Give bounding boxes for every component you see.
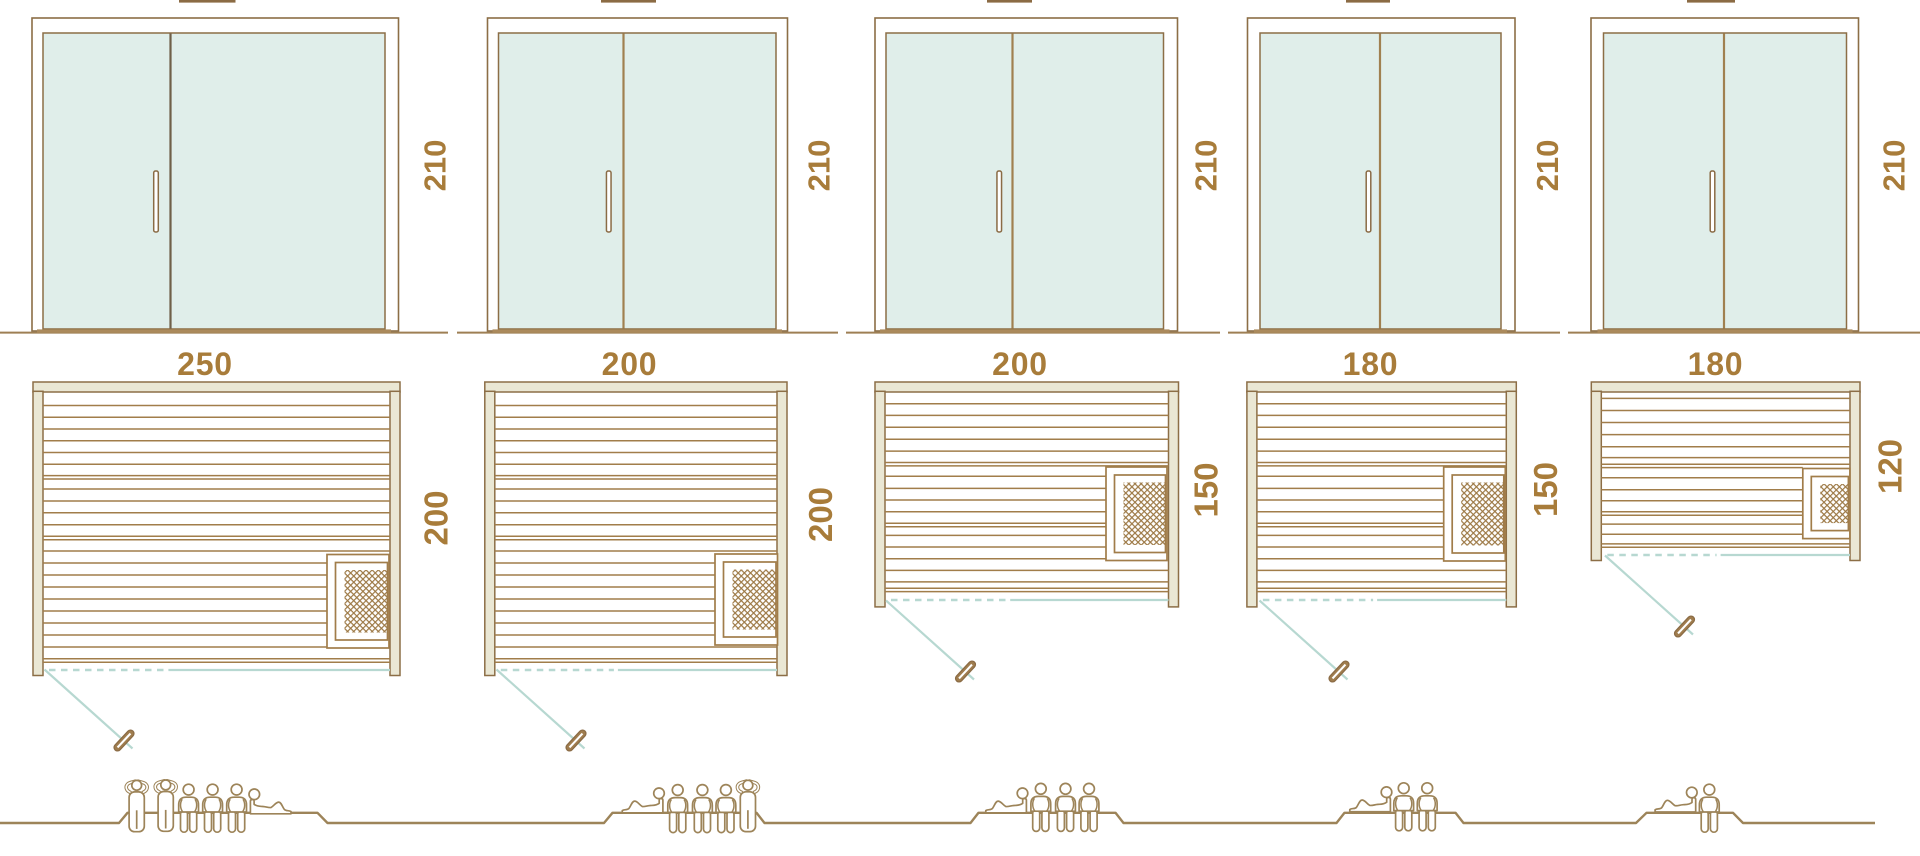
svg-text:120: 120: [1872, 439, 1909, 494]
svg-text:150: 150: [1527, 462, 1564, 517]
svg-text:210: 210: [1876, 140, 1911, 192]
svg-text:150: 150: [1187, 462, 1224, 517]
svg-text:200: 200: [802, 487, 839, 542]
svg-text:210: 210: [418, 140, 453, 192]
svg-text:210: 210: [1530, 140, 1565, 192]
svg-text:200: 200: [992, 346, 1048, 382]
svg-text:180: 180: [1688, 346, 1744, 382]
svg-text:200: 200: [418, 490, 455, 545]
svg-text:210: 210: [1189, 140, 1224, 192]
svg-text:200: 200: [602, 346, 658, 382]
svg-text:180: 180: [1343, 346, 1399, 382]
svg-text:210: 210: [801, 140, 836, 192]
svg-text:250: 250: [177, 346, 233, 382]
